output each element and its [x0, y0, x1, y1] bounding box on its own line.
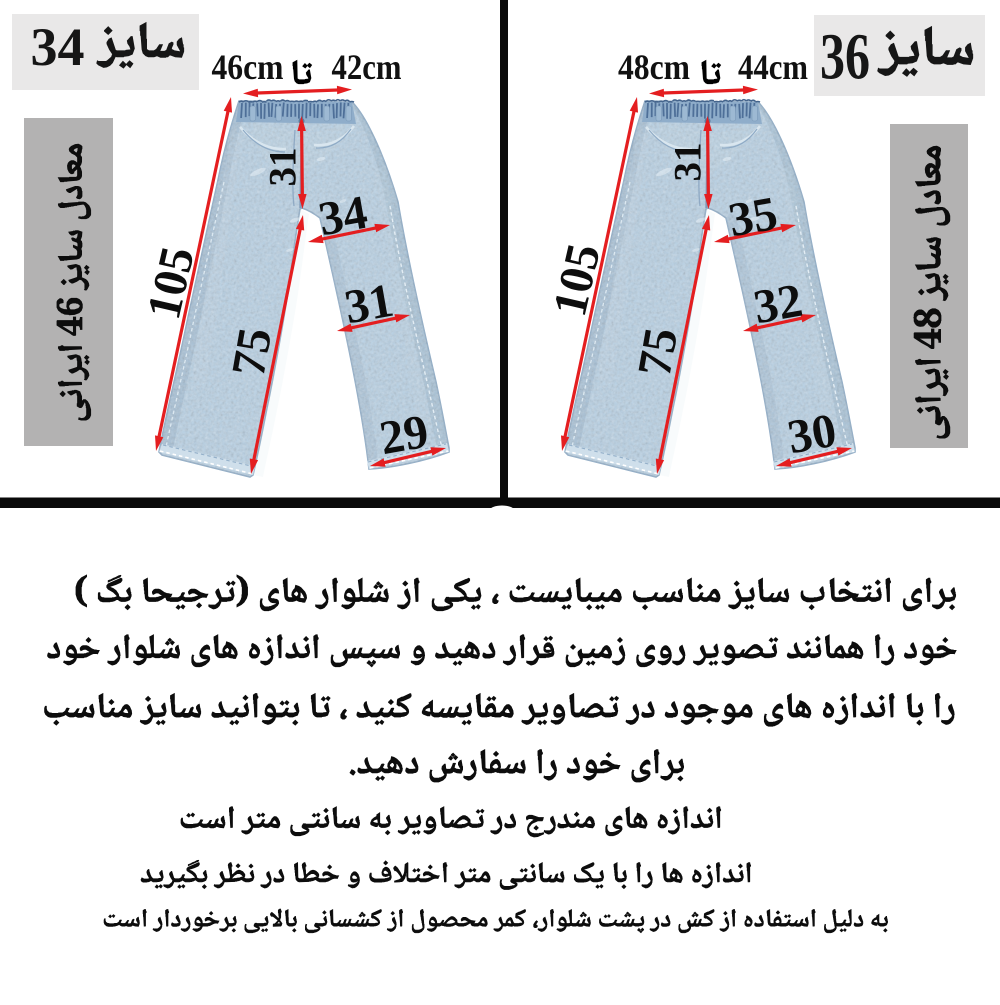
svg-text:32: 32 [750, 274, 806, 335]
svg-text:29: 29 [376, 405, 432, 466]
svg-text:48cm: 48cm [618, 47, 690, 87]
svg-text:36: 36 [820, 21, 870, 94]
svg-text:46cm: 46cm [212, 47, 284, 87]
svg-text:31: 31 [262, 148, 305, 187]
svg-text:34: 34 [31, 17, 85, 77]
svg-text:34: 34 [315, 186, 371, 247]
svg-text:31: 31 [341, 274, 397, 335]
svg-text:31: 31 [667, 143, 710, 182]
svg-text:42cm: 42cm [332, 47, 402, 87]
svg-text:30: 30 [784, 404, 840, 465]
svg-text:44cm: 44cm [738, 47, 808, 87]
svg-text:75: 75 [222, 324, 283, 380]
svg-text:35: 35 [725, 187, 781, 248]
svg-text:75: 75 [628, 324, 689, 380]
